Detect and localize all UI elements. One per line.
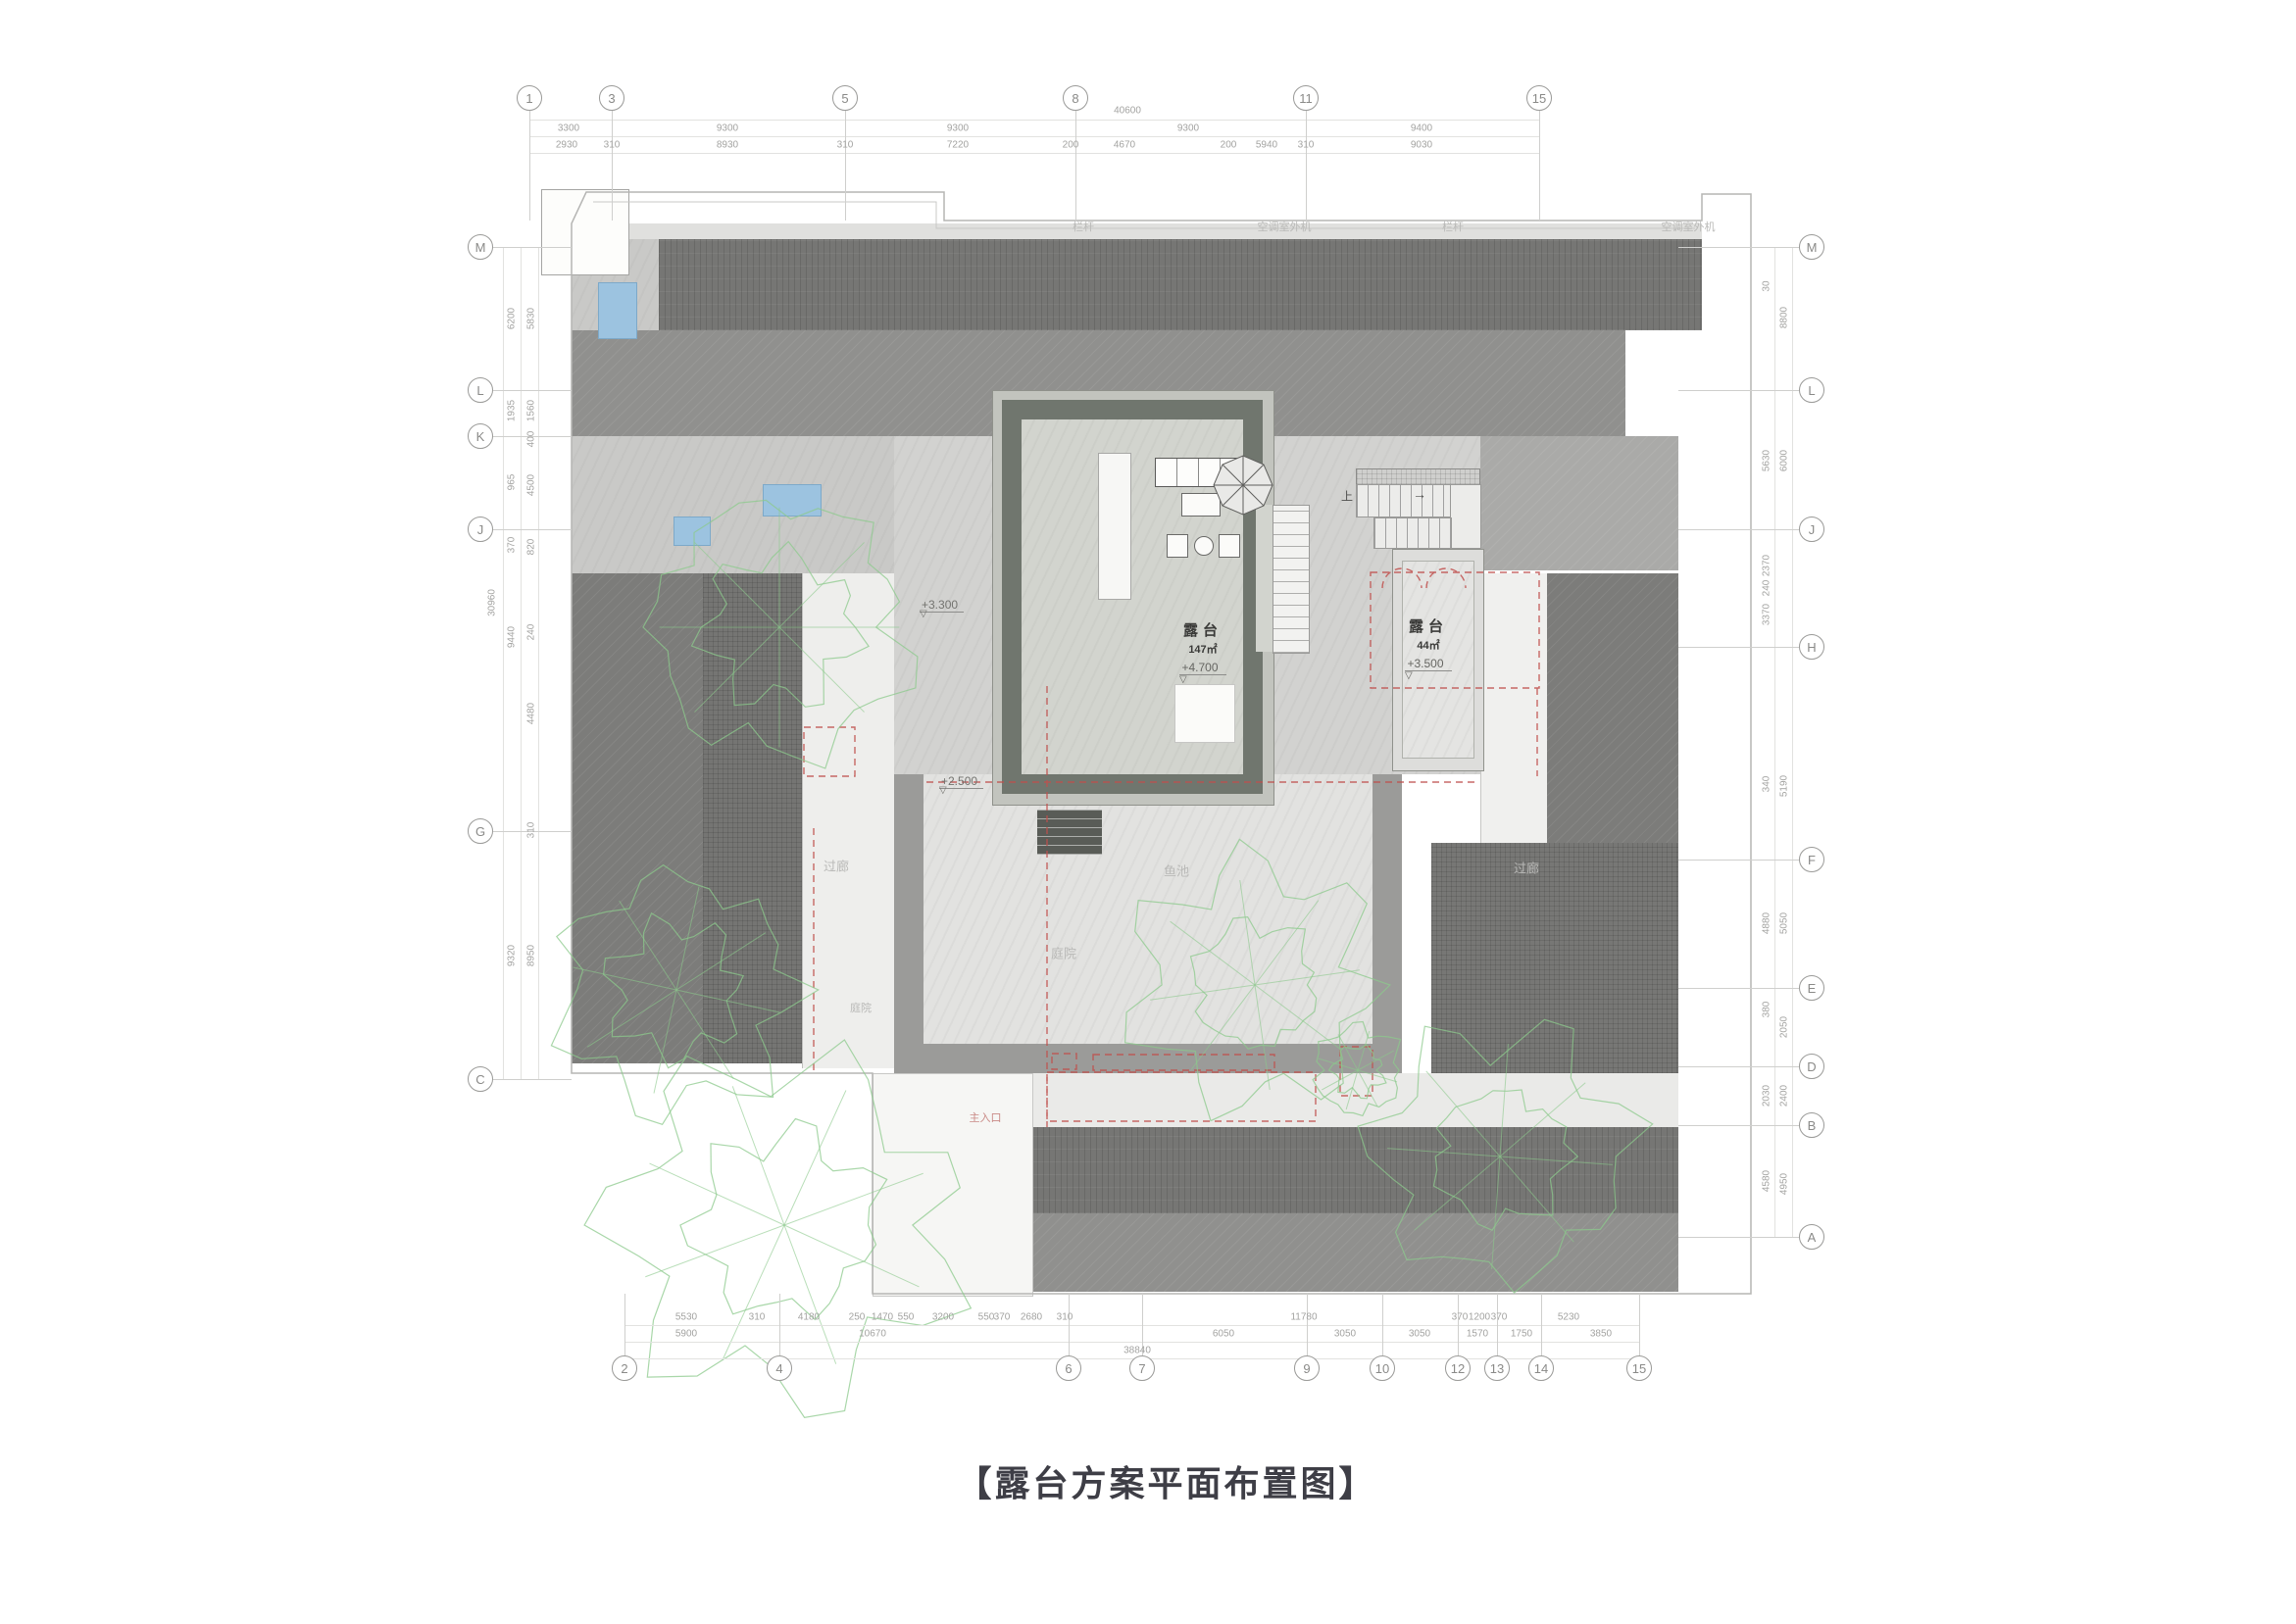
plan-note: 过廊 bbox=[1514, 859, 1539, 877]
grid-bubble-right-A: A bbox=[1799, 1224, 1824, 1250]
tree-branch bbox=[784, 1225, 836, 1364]
tree-canopy bbox=[1125, 839, 1390, 1120]
dim-label: 11780 bbox=[1290, 1312, 1317, 1323]
dim-label: 550 bbox=[978, 1312, 995, 1323]
grid-leader-line bbox=[1497, 1294, 1498, 1355]
dim-label: 2030 bbox=[1762, 1085, 1772, 1107]
dim-label: 370 bbox=[1452, 1312, 1469, 1323]
dim-chain bbox=[529, 120, 1539, 121]
tree-branch bbox=[1426, 1071, 1500, 1156]
tree-branch bbox=[676, 990, 780, 1012]
grid-leader-line bbox=[493, 390, 572, 391]
tree-canopy bbox=[680, 1119, 887, 1320]
grid-leader-line bbox=[1678, 860, 1799, 861]
dim-chain bbox=[503, 247, 504, 1079]
tree-branch bbox=[1500, 1156, 1573, 1242]
grid-bubble-bottom-13: 13 bbox=[1484, 1355, 1510, 1381]
dim-label: 9320 bbox=[507, 945, 518, 966]
grid-leader-line bbox=[624, 1294, 625, 1355]
tree-branch bbox=[784, 1091, 846, 1225]
dim-chain bbox=[1774, 247, 1775, 1237]
grid-leader-line bbox=[1075, 111, 1076, 221]
dim-label: 9400 bbox=[1411, 123, 1432, 134]
dim-label: 200 bbox=[1221, 140, 1237, 151]
dim-label: 7220 bbox=[947, 140, 969, 151]
dim-label: 3370 bbox=[1762, 604, 1772, 625]
tree-branch bbox=[620, 901, 676, 990]
dim-label: 240 bbox=[526, 624, 537, 641]
room-name: 露台 bbox=[1162, 619, 1244, 640]
dim-label: 5900 bbox=[675, 1329, 697, 1340]
tree-branch bbox=[650, 1163, 784, 1225]
plan-note: 空调室外机 bbox=[1258, 219, 1312, 234]
grid-leader-line bbox=[1678, 247, 1799, 248]
grid-leader-line bbox=[1639, 1294, 1640, 1355]
dim-label: 965 bbox=[507, 474, 518, 491]
dim-label: 5830 bbox=[526, 308, 537, 329]
dim-label: 400 bbox=[526, 431, 537, 448]
dim-label: 10670 bbox=[859, 1329, 886, 1340]
grid-leader-line bbox=[845, 111, 846, 221]
tree-branch bbox=[1387, 1149, 1500, 1156]
parasol-icon bbox=[1214, 456, 1273, 515]
dim-label: 3850 bbox=[1590, 1329, 1612, 1340]
dim-chain bbox=[538, 247, 539, 1079]
dim-label: 5230 bbox=[1558, 1312, 1579, 1323]
grid-leader-line bbox=[1678, 529, 1799, 530]
plan-overlay bbox=[0, 0, 2296, 1624]
dim-label: 3050 bbox=[1409, 1329, 1430, 1340]
dim-label: 6000 bbox=[1779, 450, 1790, 471]
tree-canopy bbox=[1433, 1090, 1577, 1230]
dim-label: 6050 bbox=[1213, 1329, 1234, 1340]
grid-leader-line bbox=[1306, 111, 1307, 221]
tree-branch bbox=[694, 542, 779, 627]
grid-bubble-bottom-14: 14 bbox=[1528, 1355, 1554, 1381]
dim-label: 2370 bbox=[1762, 555, 1772, 576]
room-label: 露台147㎡+4.700▽ bbox=[1162, 619, 1244, 683]
plan-note: 上 bbox=[1341, 488, 1353, 505]
grid-leader-line bbox=[1382, 1294, 1383, 1355]
tree-canopy bbox=[604, 913, 744, 1068]
dim-label: 5530 bbox=[675, 1312, 697, 1323]
dim-label: 5630 bbox=[1762, 450, 1772, 471]
dim-label: 370 bbox=[994, 1312, 1011, 1323]
dim-label: 310 bbox=[749, 1312, 766, 1323]
site-boundary-inner bbox=[593, 202, 1695, 228]
dim-chain bbox=[624, 1342, 1639, 1343]
tree-branch bbox=[1255, 985, 1339, 1049]
tree-branch bbox=[573, 967, 676, 990]
dim-label: 370 bbox=[1491, 1312, 1508, 1323]
tree-branch bbox=[1255, 970, 1360, 985]
tree-canopy bbox=[1358, 1019, 1653, 1293]
level-triangle-icon: ▽ bbox=[1405, 672, 1470, 679]
tree-branch bbox=[1415, 1156, 1500, 1230]
dim-label: 8950 bbox=[526, 945, 537, 966]
tree-canopy bbox=[551, 865, 818, 1125]
dim-label: 820 bbox=[526, 539, 537, 556]
grid-leader-line bbox=[1678, 1066, 1799, 1067]
level-marker: +2.500▽ bbox=[939, 774, 983, 795]
dim-label: 8800 bbox=[1779, 307, 1790, 328]
tree-branch bbox=[1240, 880, 1255, 985]
tree-branch bbox=[784, 1173, 923, 1225]
plan-note: 鱼池 bbox=[1164, 861, 1189, 880]
dim-label: 9030 bbox=[1411, 140, 1432, 151]
grid-bubble-top-3: 3 bbox=[599, 85, 624, 111]
tree-branch bbox=[723, 1225, 784, 1359]
dim-label: 40600 bbox=[1114, 106, 1141, 117]
dim-label: 38840 bbox=[1123, 1346, 1151, 1356]
tree-branch bbox=[1255, 901, 1319, 985]
dim-chain bbox=[529, 153, 1539, 154]
grid-leader-line bbox=[1069, 1294, 1070, 1355]
tree-branch bbox=[1191, 985, 1255, 1069]
tree-branch bbox=[694, 627, 779, 713]
plan-note: 栏杆 bbox=[1442, 219, 1464, 234]
dim-label: 5050 bbox=[1779, 912, 1790, 934]
grid-leader-line bbox=[1678, 647, 1799, 648]
grid-bubble-bottom-15: 15 bbox=[1626, 1355, 1652, 1381]
level-triangle-icon: ▽ bbox=[1179, 676, 1244, 683]
dim-label: 4580 bbox=[1762, 1170, 1772, 1192]
dim-chain bbox=[1792, 247, 1793, 1237]
dim-label: 4500 bbox=[526, 474, 537, 496]
grid-bubble-left-L: L bbox=[468, 377, 493, 403]
grid-leader-line bbox=[1541, 1294, 1542, 1355]
dim-label: 1935 bbox=[507, 400, 518, 421]
grid-bubble-left-M: M bbox=[468, 234, 493, 260]
dim-label: 30960 bbox=[487, 589, 498, 616]
room-label: 露台44㎡+3.500▽ bbox=[1387, 615, 1470, 679]
room-area: 44㎡ bbox=[1387, 637, 1470, 653]
grid-bubble-right-D: D bbox=[1799, 1054, 1824, 1079]
grid-bubble-bottom-4: 4 bbox=[767, 1355, 792, 1381]
grid-bubble-bottom-7: 7 bbox=[1129, 1355, 1155, 1381]
room-level: +4.700 bbox=[1179, 661, 1225, 675]
dim-label: 9440 bbox=[507, 626, 518, 648]
grid-leader-line bbox=[612, 111, 613, 221]
plan-note: 空调室外机 bbox=[1662, 219, 1716, 234]
dim-label: 8930 bbox=[717, 140, 738, 151]
dim-label: 9300 bbox=[717, 123, 738, 134]
dim-label: 2930 bbox=[556, 140, 577, 151]
dim-label: 3200 bbox=[932, 1312, 954, 1323]
dim-label: 5190 bbox=[1779, 775, 1790, 797]
grid-bubble-right-B: B bbox=[1799, 1112, 1824, 1138]
dim-label: 1750 bbox=[1511, 1329, 1532, 1340]
grid-bubble-right-F: F bbox=[1799, 847, 1824, 872]
tree-branch bbox=[779, 542, 865, 627]
grid-bubble-top-11: 11 bbox=[1293, 85, 1319, 111]
tree-branch bbox=[587, 990, 676, 1047]
plan-note: 过廊 bbox=[824, 857, 849, 875]
room-level: +3.500 bbox=[1405, 657, 1451, 671]
level-marker: +3.300▽ bbox=[920, 598, 964, 618]
dim-label: 1470 bbox=[872, 1312, 893, 1323]
dim-label: 4670 bbox=[1114, 140, 1135, 151]
grid-bubble-top-8: 8 bbox=[1063, 85, 1088, 111]
dim-label: 1560 bbox=[526, 400, 537, 421]
grid-leader-line bbox=[779, 1294, 780, 1355]
room-area: 147㎡ bbox=[1162, 641, 1244, 657]
dim-label: 1570 bbox=[1467, 1329, 1488, 1340]
grid-leader-line bbox=[493, 1079, 572, 1080]
tree-canopy bbox=[1191, 917, 1317, 1050]
dim-label: 4880 bbox=[1762, 912, 1772, 934]
grid-bubble-left-C: C bbox=[468, 1066, 493, 1092]
tree-branch bbox=[1171, 921, 1255, 985]
plan-note: 庭院 bbox=[850, 1000, 872, 1015]
floor-plan-sheet: 13581115246791012131415MLKJGCMLJHFEDBA40… bbox=[0, 0, 2296, 1624]
tree-branch bbox=[1500, 1044, 1508, 1156]
dim-label: 310 bbox=[1298, 140, 1315, 151]
grid-leader-line bbox=[493, 247, 572, 248]
tree-branch bbox=[676, 933, 766, 990]
dim-label: 30 bbox=[1762, 280, 1772, 291]
tree-branch bbox=[1492, 1156, 1500, 1269]
dim-label: 4950 bbox=[1779, 1173, 1790, 1195]
dim-label: 3300 bbox=[558, 123, 579, 134]
dim-label: 5940 bbox=[1256, 140, 1277, 151]
grid-leader-line bbox=[1678, 988, 1799, 989]
dim-label: 4480 bbox=[526, 703, 537, 724]
dim-label: 4180 bbox=[798, 1312, 820, 1323]
grid-bubble-right-E: E bbox=[1799, 975, 1824, 1001]
tree-branch bbox=[645, 1225, 784, 1277]
dim-label: 310 bbox=[1057, 1312, 1073, 1323]
room-name: 露台 bbox=[1387, 615, 1470, 636]
dim-label: 2050 bbox=[1779, 1016, 1790, 1038]
grid-leader-line bbox=[1458, 1294, 1459, 1355]
dim-chain bbox=[624, 1325, 1639, 1326]
dim-label: 250 bbox=[849, 1312, 866, 1323]
dim-label: 550 bbox=[898, 1312, 915, 1323]
dim-label: 310 bbox=[837, 140, 854, 151]
dim-label: 9300 bbox=[947, 123, 969, 134]
plan-note: 庭院 bbox=[1051, 944, 1076, 962]
dim-label: 9300 bbox=[1177, 123, 1199, 134]
dim-label: 240 bbox=[1762, 580, 1772, 597]
grid-bubble-right-J: J bbox=[1799, 517, 1824, 542]
tree-canopy bbox=[643, 500, 918, 768]
grid-leader-line bbox=[1678, 1237, 1799, 1238]
tree-branch bbox=[1150, 985, 1255, 1000]
dim-label: 380 bbox=[1762, 1002, 1772, 1018]
sheet-title: 【露台方案平面布置图】 bbox=[824, 1455, 1510, 1506]
grid-bubble-top-5: 5 bbox=[832, 85, 858, 111]
dim-label: 2680 bbox=[1021, 1312, 1042, 1323]
grid-bubble-bottom-10: 10 bbox=[1370, 1355, 1395, 1381]
plan-note: → bbox=[1413, 486, 1426, 502]
grid-bubble-left-K: K bbox=[468, 423, 493, 449]
grid-leader-line bbox=[1678, 390, 1799, 391]
tree-branch bbox=[1500, 1156, 1613, 1164]
dim-chain bbox=[529, 136, 1539, 137]
grid-leader-line bbox=[1307, 1294, 1308, 1355]
plan-note: 主入口 bbox=[970, 1109, 1002, 1125]
grid-bubble-top-15: 15 bbox=[1526, 85, 1552, 111]
tree-layer bbox=[551, 500, 1652, 1417]
dim-label: 340 bbox=[1762, 776, 1772, 793]
dim-label: 3050 bbox=[1334, 1329, 1356, 1340]
grid-bubble-right-M: M bbox=[1799, 234, 1824, 260]
grid-bubble-bottom-9: 9 bbox=[1294, 1355, 1320, 1381]
grid-bubble-bottom-6: 6 bbox=[1056, 1355, 1081, 1381]
dim-chain bbox=[521, 247, 522, 1079]
tree-branch bbox=[676, 990, 733, 1079]
tree-branch bbox=[784, 1225, 919, 1287]
grid-bubble-right-H: H bbox=[1799, 634, 1824, 660]
grid-leader-line bbox=[493, 529, 572, 530]
dim-label: 1200 bbox=[1469, 1312, 1490, 1323]
tree-branch bbox=[1255, 985, 1270, 1090]
dim-label: 310 bbox=[526, 822, 537, 839]
grid-bubble-bottom-2: 2 bbox=[612, 1355, 637, 1381]
grid-bubble-top-1: 1 bbox=[517, 85, 542, 111]
dim-label: 6200 bbox=[507, 308, 518, 329]
plan-note: 栏杆 bbox=[1073, 219, 1094, 234]
grid-bubble-right-L: L bbox=[1799, 377, 1824, 403]
grid-bubble-bottom-12: 12 bbox=[1445, 1355, 1471, 1381]
dim-label: 310 bbox=[604, 140, 621, 151]
dim-label: 2400 bbox=[1779, 1085, 1790, 1107]
grid-leader-line bbox=[1539, 111, 1540, 221]
grid-bubble-left-J: J bbox=[468, 517, 493, 542]
tree-branch bbox=[732, 1086, 784, 1225]
grid-leader-line bbox=[529, 111, 530, 221]
dim-label: 200 bbox=[1063, 140, 1079, 151]
grid-bubble-left-G: G bbox=[468, 818, 493, 844]
tree-branch bbox=[1500, 1083, 1585, 1156]
grid-leader-line bbox=[1678, 1125, 1799, 1126]
dim-label: 370 bbox=[507, 537, 518, 554]
tree-branch bbox=[779, 627, 865, 713]
